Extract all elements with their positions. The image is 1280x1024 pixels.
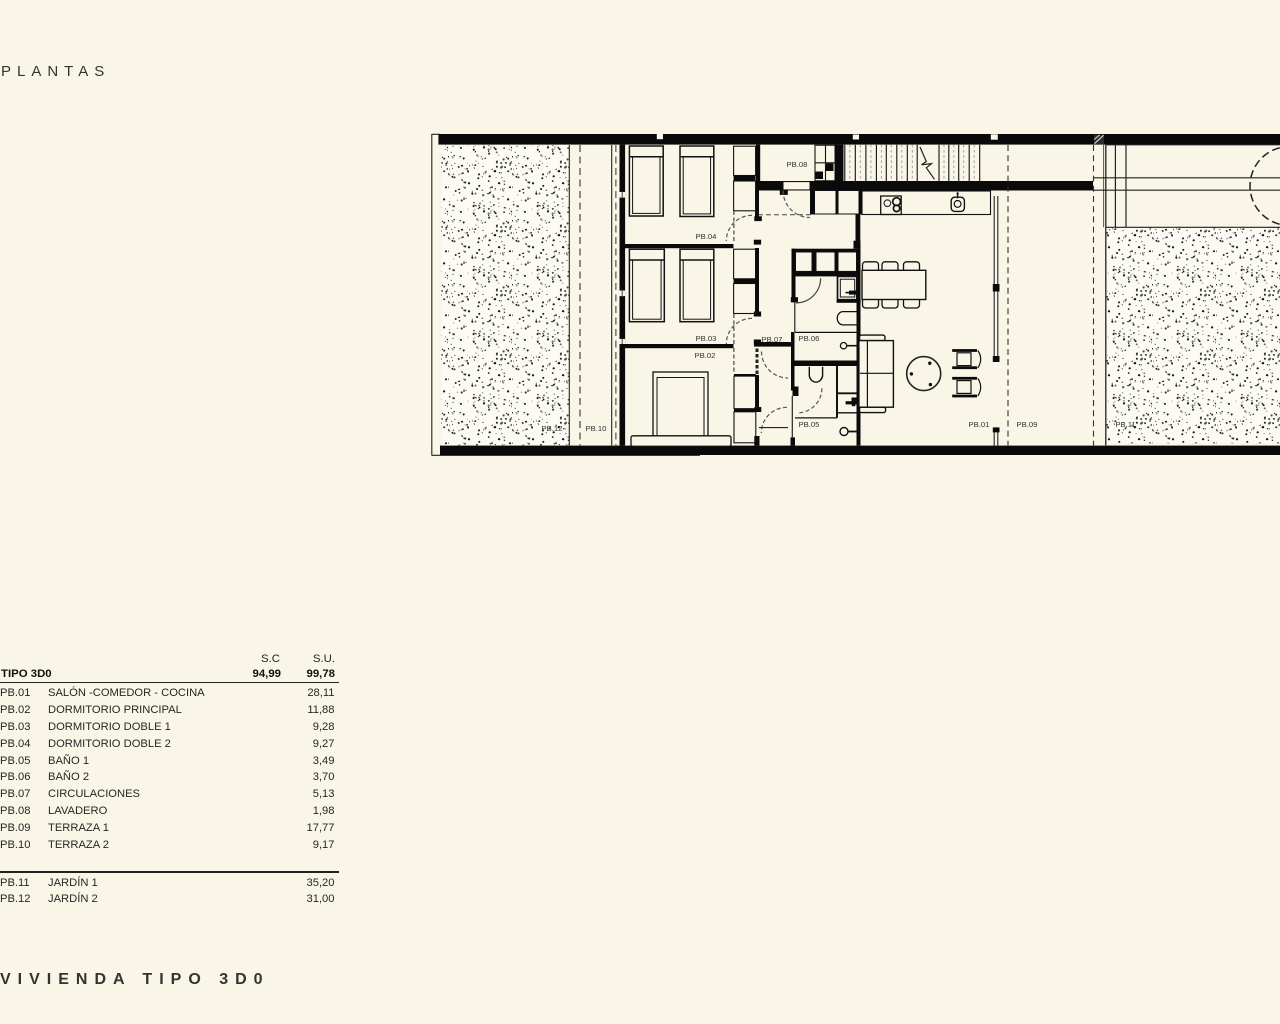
svg-text:PB.10: PB.10 [586, 424, 607, 433]
svg-text:PB.04: PB.04 [696, 232, 718, 241]
svg-text:PB.12: PB.12 [542, 424, 563, 433]
svg-text:PB.11: PB.11 [1115, 420, 1135, 429]
svg-text:PB.08: PB.08 [787, 160, 808, 169]
svg-text:PB.03: PB.03 [696, 334, 717, 343]
svg-text:PB.05: PB.05 [799, 420, 820, 429]
svg-text:PB.01: PB.01 [969, 420, 990, 429]
svg-text:PB.07: PB.07 [762, 335, 783, 344]
svg-text:PB.06: PB.06 [799, 334, 820, 343]
svg-text:PB.09: PB.09 [1017, 420, 1038, 429]
svg-text:PB.02: PB.02 [695, 351, 716, 360]
